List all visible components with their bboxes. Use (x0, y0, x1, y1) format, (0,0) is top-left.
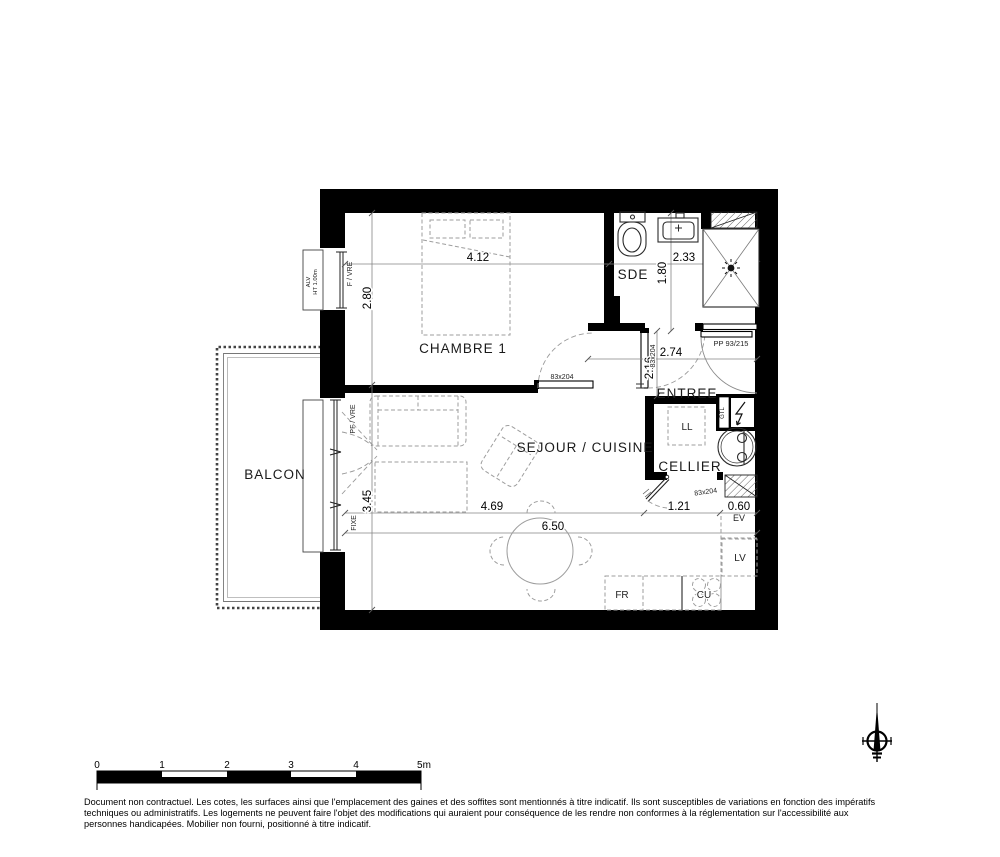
sejour-window-type: PF / VRE (350, 404, 357, 434)
chambre-window-type: F / VRE (347, 261, 354, 286)
dim-chambre-width: 4.12 (467, 252, 489, 264)
armchair (478, 423, 541, 489)
chambre-sill-height: HT 1.00m (313, 269, 319, 295)
label-sde: SDE (618, 267, 649, 282)
shower (703, 229, 759, 307)
shower-drain (728, 265, 735, 272)
scale-3: 3 (288, 760, 294, 771)
sejour-window-fixed: FIXE (351, 515, 358, 531)
dim-sde-depth: 1.80 (657, 262, 669, 284)
washbasin (658, 213, 698, 242)
washing-machine-label: LL (681, 422, 693, 433)
dim-entree-width: 2.74 (660, 347, 683, 359)
dim-sde-width: 2.33 (673, 252, 695, 264)
sejour-window (303, 400, 341, 552)
label-chambre: CHAMBRE 1 (419, 341, 507, 356)
dim-total-width: 6.50 (542, 521, 564, 533)
dishwasher-label: LV (734, 553, 746, 564)
disclaimer-line-3: personnes handicapées. Mobilier non four… (84, 819, 371, 829)
dim-sejour-width: 4.69 (481, 501, 503, 513)
label-cellier: CELLIER (658, 459, 721, 474)
dining-table (490, 501, 592, 601)
scale-bar: 0 1 2 3 4 5m (94, 760, 431, 790)
sde-door-size: 83x204 (650, 344, 657, 367)
label-sejour-cuisine: SEJOUR / CUISINE (517, 440, 654, 455)
floor-plan-page: CHAMBRE 1 SDE ENTREE SEJOUR / CUISINE CE… (0, 0, 1000, 857)
soffit-hatched-cellier (725, 475, 757, 497)
disclaimer: Document non contractuel. Les cotes, les… (84, 797, 876, 829)
scale-5m: 5m (417, 760, 431, 771)
scale-1: 1 (159, 760, 165, 771)
chambre-door-size: 83x204 (551, 374, 574, 381)
hob-label: CU (697, 590, 711, 601)
dim-kitchen-depth: 0.60 (728, 501, 750, 513)
dim-cellier-width: 1.21 (668, 501, 690, 513)
disclaimer-line-2: techniques ou administratifs. Les logeme… (84, 808, 849, 818)
cellier-door-size: 83x204 (694, 487, 718, 497)
cellier-door (643, 475, 669, 508)
sink-label: EV (733, 513, 745, 523)
dim-chambre-depth: 2.80 (362, 287, 374, 309)
toilet (618, 212, 646, 256)
entry-door-ref: PP 93/215 (714, 339, 749, 348)
label-balcon: BALCON (244, 467, 306, 482)
label-entree: ENTREE (657, 386, 718, 401)
scale-2: 2 (224, 760, 230, 771)
scale-4: 4 (353, 760, 359, 771)
fridge-label: FR (615, 590, 628, 601)
rug (375, 462, 467, 512)
scale-0: 0 (94, 760, 100, 771)
dim-sejour-depth: 3.45 (362, 490, 374, 512)
entry-door (701, 324, 757, 393)
water-heater (718, 428, 756, 466)
disclaimer-line-1: Document non contractuel. Les cotes, les… (84, 797, 876, 807)
north-compass-icon (862, 703, 892, 762)
floor-plan-drawing: CHAMBRE 1 SDE ENTREE SEJOUR / CUISINE CE… (0, 0, 1000, 857)
chambre-sill-label: ALV (306, 277, 312, 288)
soffit-hatched-top (711, 212, 757, 228)
gtl-label: GTL (720, 407, 726, 419)
dimension-lines (342, 210, 760, 613)
sofa (370, 396, 466, 446)
bed (422, 213, 510, 335)
